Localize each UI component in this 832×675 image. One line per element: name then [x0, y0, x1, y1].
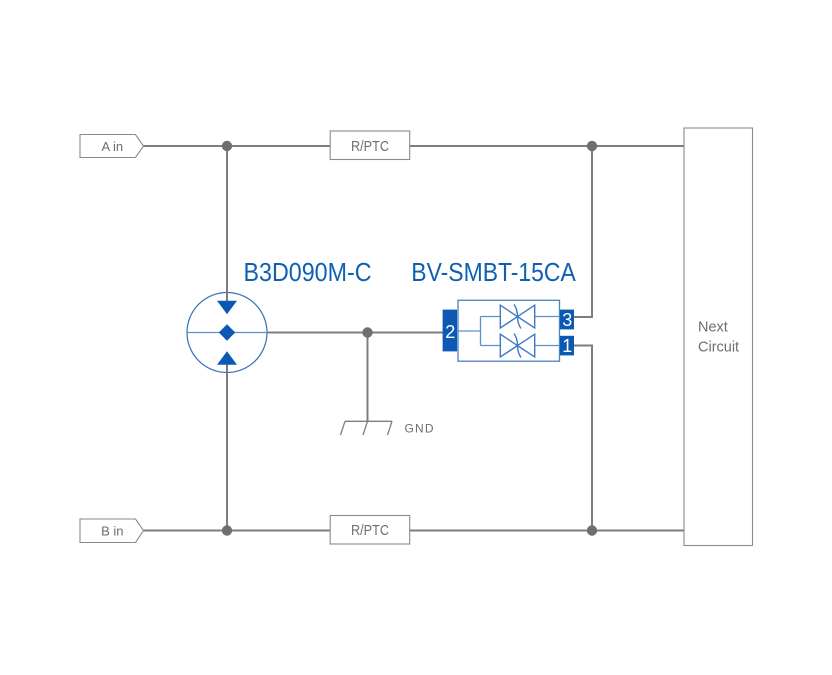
svg-text:R/PTC: R/PTC	[351, 138, 389, 155]
svg-text:B in: B in	[101, 523, 123, 538]
svg-text:R/PTC: R/PTC	[351, 522, 389, 539]
svg-text:1: 1	[562, 336, 572, 356]
svg-text:B3D090M-C: B3D090M-C	[244, 257, 372, 287]
svg-text:2: 2	[445, 322, 455, 342]
svg-text:A in: A in	[101, 139, 123, 154]
svg-text:Circuit: Circuit	[698, 339, 739, 355]
svg-text:BV-SMBT-15CA: BV-SMBT-15CA	[411, 257, 576, 287]
svg-text:Next: Next	[698, 319, 728, 335]
svg-text:GND: GND	[405, 422, 435, 436]
svg-text:3: 3	[562, 310, 572, 330]
